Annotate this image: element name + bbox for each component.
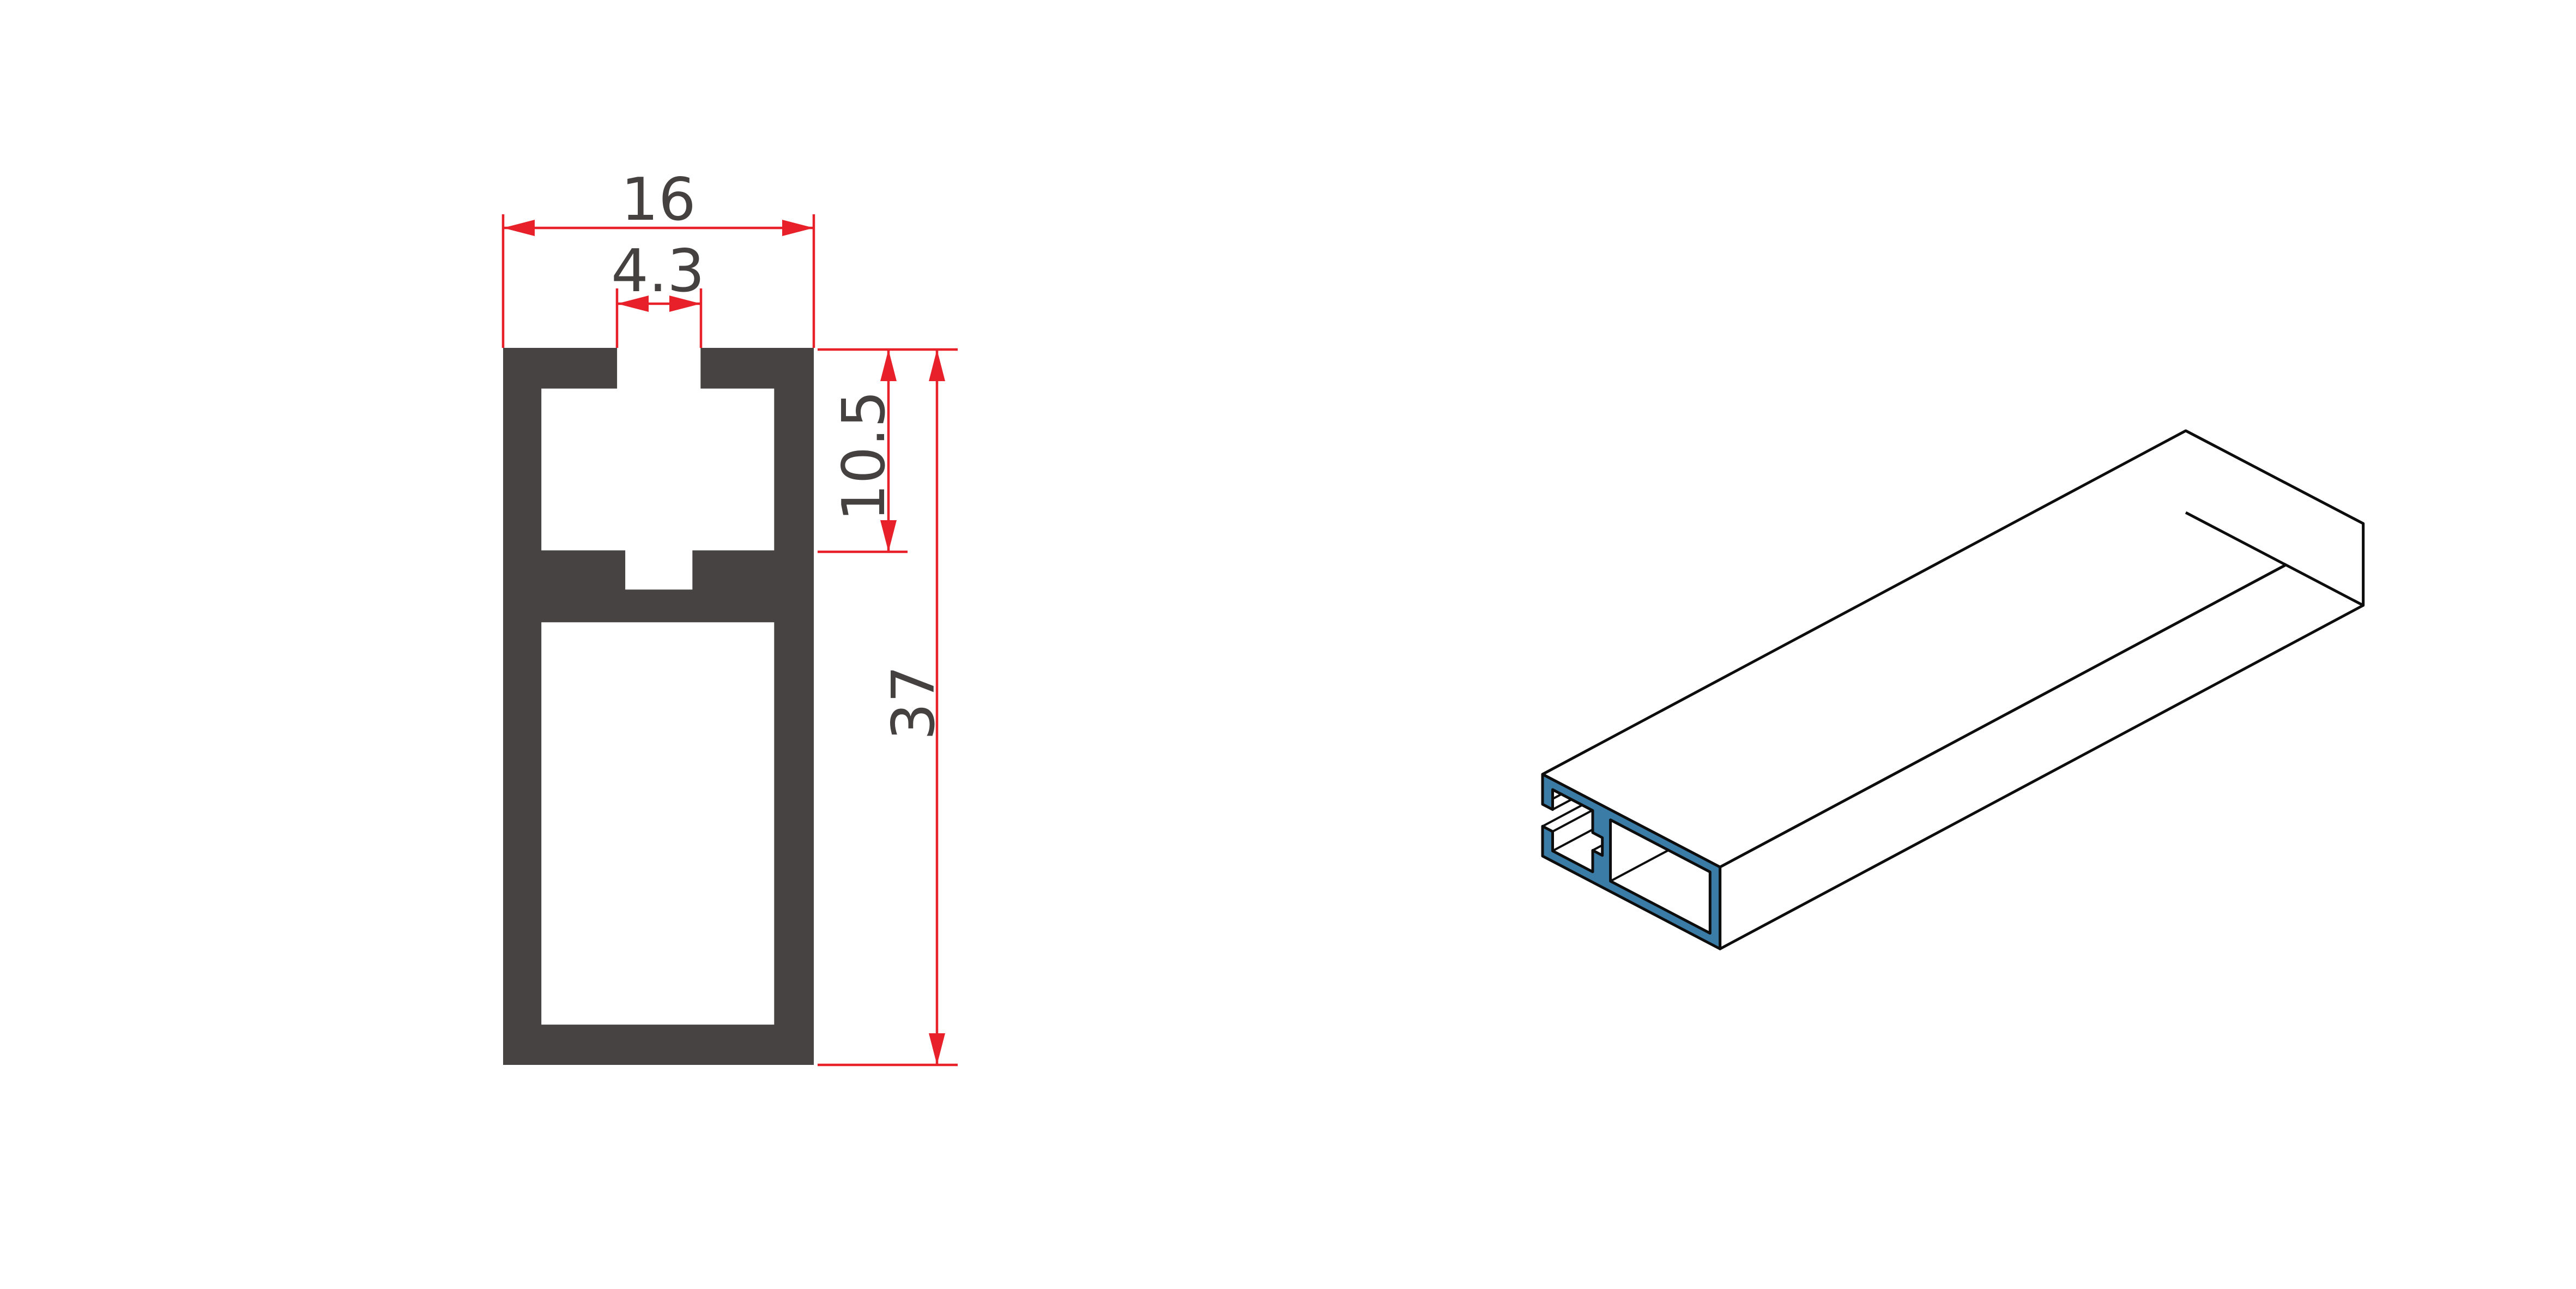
dimension-label: 37 bbox=[880, 665, 948, 740]
isometric-view bbox=[1543, 431, 2363, 949]
dimension-label: 10.5 bbox=[830, 390, 898, 521]
technical-drawing: 164.310.537 bbox=[0, 0, 2576, 1289]
dimension-lines bbox=[503, 214, 958, 1065]
dimension-label: 4.3 bbox=[611, 237, 705, 305]
dimension-label: 16 bbox=[621, 166, 696, 234]
drawing-canvas: 164.310.537 bbox=[0, 0, 2576, 1289]
cross-section-view: 164.310.537 bbox=[503, 166, 958, 1065]
profile-cross-section-shape bbox=[503, 348, 814, 1065]
